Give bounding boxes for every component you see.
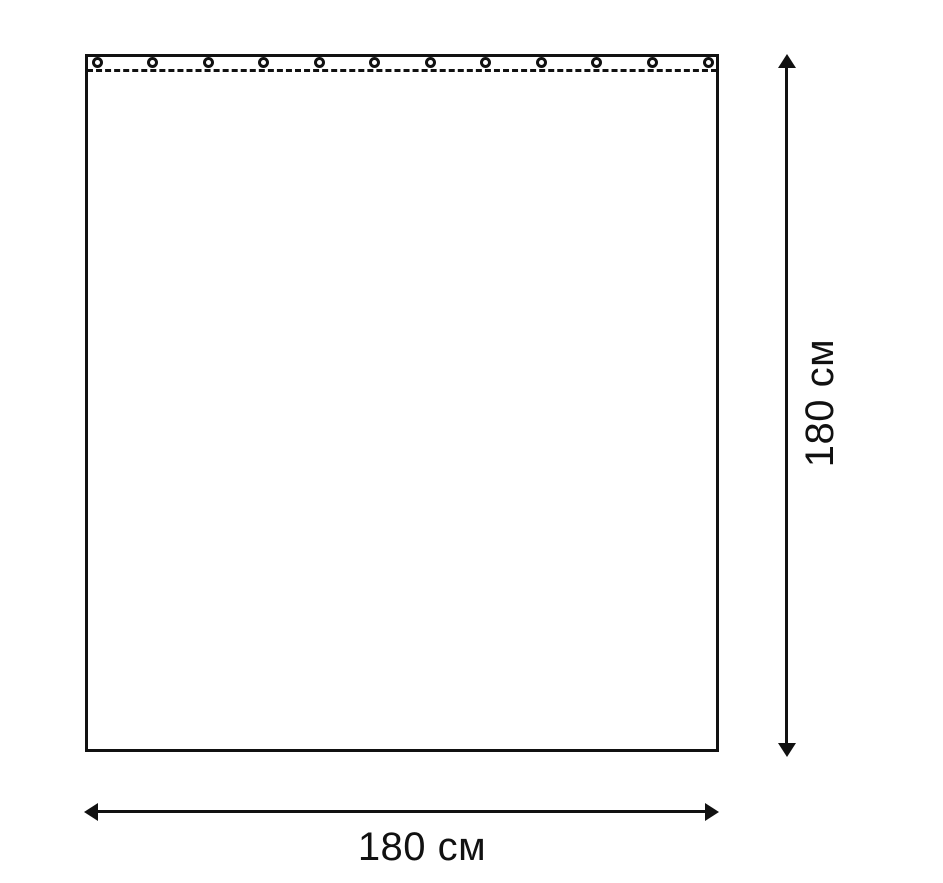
height-arrow-shaft	[785, 63, 788, 746]
arrowhead-right-icon	[705, 803, 719, 821]
arrowhead-down-icon	[778, 743, 796, 757]
width-arrow-shaft	[94, 810, 710, 813]
curtain-panel-outline	[85, 54, 719, 752]
grommet-eyelet-icon	[703, 57, 714, 68]
height-dimension-label: 180 см	[795, 303, 845, 503]
grommet-eyelet-icon	[92, 57, 103, 68]
grommet-eyelet-icon	[425, 57, 436, 68]
width-dimension-label: 180 см	[105, 822, 739, 872]
dimension-diagram: 180 см 180 см	[0, 0, 943, 883]
grommet-eyelet-icon	[647, 57, 658, 68]
grommet-eyelet-icon	[147, 57, 158, 68]
grommet-eyelet-icon	[203, 57, 214, 68]
grommet-eyelet-icon	[314, 57, 325, 68]
grommet-eyelet-icon	[536, 57, 547, 68]
stitch-dashed-line	[87, 69, 717, 72]
